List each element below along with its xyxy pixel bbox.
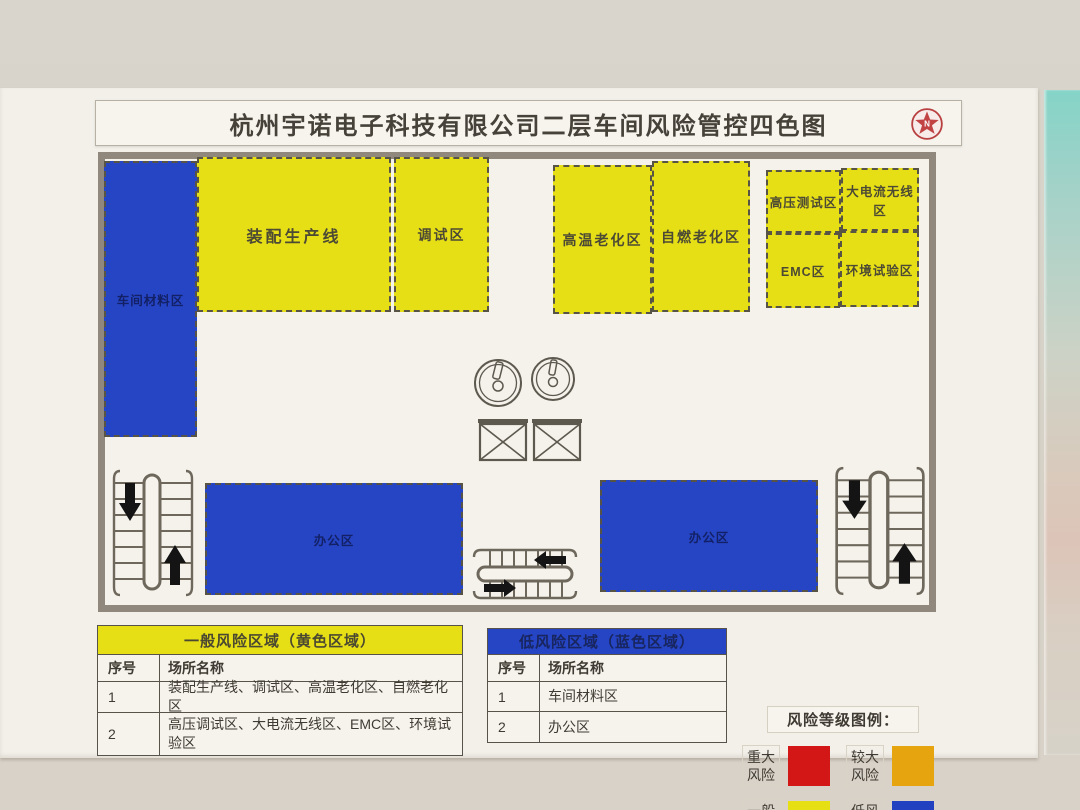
table-row: 2 高压调试区、大电流无线区、EMC区、环境试验区 bbox=[98, 713, 462, 755]
zone-label: 办公区 bbox=[314, 530, 355, 549]
zone-label: 车间材料区 bbox=[117, 290, 185, 309]
row-places: 高压调试区、大电流无线区、EMC区、环境试验区 bbox=[160, 713, 462, 755]
table-row: 1 车间材料区 bbox=[488, 682, 726, 712]
table-row: 2 办公区 bbox=[488, 712, 726, 742]
environment-test-zone: 环境试验区 bbox=[840, 231, 919, 307]
title-bar: 杭州宇诺电子科技有限公司二层车间风险管控四色图 N bbox=[95, 100, 962, 146]
legend-label: 一般风险 bbox=[742, 799, 780, 810]
major-risk-swatch bbox=[788, 746, 830, 786]
legend-item-general-risk: 一般风险 bbox=[742, 799, 840, 810]
washbasin-icon bbox=[472, 355, 584, 411]
emc-zone: EMC区 bbox=[766, 233, 840, 308]
workshop-materials-zone: 车间材料区 bbox=[104, 161, 197, 437]
larger-risk-swatch bbox=[892, 746, 934, 786]
row-places: 装配生产线、调试区、高温老化区、自燃老化区 bbox=[160, 682, 462, 712]
row-places: 车间材料区 bbox=[540, 682, 726, 711]
row-places: 办公区 bbox=[540, 712, 726, 742]
high-temp-aging-zone: 高温老化区 bbox=[553, 165, 652, 314]
risk-legend: 风险等级图例： 重大风险 较大风险 一般风险 低风险 bbox=[742, 706, 944, 810]
table-column-row: 序号 场所名称 bbox=[488, 655, 726, 682]
general-risk-swatch bbox=[788, 801, 830, 810]
zone-label: 大电流无线区 bbox=[843, 181, 917, 219]
legend-label: 低风险 bbox=[846, 799, 884, 810]
assembly-line-zone: 装配生产线 bbox=[197, 157, 391, 312]
column-header-place: 场所名称 bbox=[540, 655, 726, 681]
yellow-table-header: 一般风险区域（黄色区域） bbox=[98, 626, 462, 655]
zone-label: 高压测试区 bbox=[770, 192, 838, 211]
stairs-middle-icon bbox=[470, 545, 580, 603]
debug-zone: 调试区 bbox=[394, 157, 489, 312]
zone-label: 办公区 bbox=[689, 527, 730, 546]
stairs-left-icon bbox=[108, 463, 198, 603]
low-risk-swatch bbox=[892, 801, 934, 810]
legend-item-major-risk: 重大风险 bbox=[742, 745, 840, 787]
row-index: 2 bbox=[488, 712, 540, 742]
high-voltage-test-zone: 高压测试区 bbox=[766, 170, 841, 233]
floor-plan: 车间材料区 装配生产线 调试区 高温老化区 自燃老化区 高压测试区 大电流无线区… bbox=[98, 152, 936, 612]
table-row: 1 装配生产线、调试区、高温老化区、自燃老化区 bbox=[98, 682, 462, 713]
column-header-index: 序号 bbox=[488, 655, 540, 681]
zone-label: 装配生产线 bbox=[246, 223, 341, 247]
legend-item-larger-risk: 较大风险 bbox=[846, 745, 944, 787]
svg-text:N: N bbox=[924, 120, 930, 129]
risk-map-poster: 杭州宇诺电子科技有限公司二层车间风险管控四色图 N 车间材料区 装配生产线 调试… bbox=[0, 88, 1038, 758]
company-logo-icon: N bbox=[909, 106, 945, 142]
row-index: 2 bbox=[98, 713, 160, 755]
row-index: 1 bbox=[98, 682, 160, 712]
yellow-risk-table: 一般风险区域（黄色区域） 序号 场所名称 1 装配生产线、调试区、高温老化区、自… bbox=[97, 625, 463, 756]
zone-label: 环境试验区 bbox=[846, 260, 914, 279]
zone-label: 自燃老化区 bbox=[661, 227, 741, 247]
row-index: 1 bbox=[488, 682, 540, 711]
legend-grid: 重大风险 较大风险 一般风险 低风险 bbox=[742, 745, 944, 810]
legend-label: 较大风险 bbox=[846, 745, 884, 787]
self-ignition-aging-zone: 自燃老化区 bbox=[652, 161, 750, 312]
page-title: 杭州宇诺电子科技有限公司二层车间风险管控四色图 bbox=[230, 106, 828, 141]
office-zone-right: 办公区 bbox=[600, 480, 818, 592]
legend-title: 风险等级图例： bbox=[767, 706, 919, 733]
blue-table-header: 低风险区域（蓝色区域） bbox=[488, 629, 726, 655]
legend-item-low-risk: 低风险 bbox=[846, 799, 944, 810]
side-poster-strip bbox=[1044, 90, 1080, 755]
high-current-wireless-zone: 大电流无线区 bbox=[841, 168, 919, 231]
blue-risk-table: 低风险区域（蓝色区域） 序号 场所名称 1 车间材料区 2 办公区 bbox=[487, 628, 727, 743]
zone-label: EMC区 bbox=[781, 261, 825, 280]
column-header-index: 序号 bbox=[98, 655, 160, 681]
legend-label: 重大风险 bbox=[742, 745, 780, 787]
office-zone-left: 办公区 bbox=[205, 483, 463, 595]
column-header-place: 场所名称 bbox=[160, 655, 462, 681]
elevator-icon bbox=[477, 418, 583, 462]
stairs-right-icon bbox=[830, 460, 930, 602]
zone-label: 调试区 bbox=[418, 225, 466, 245]
zone-label: 高温老化区 bbox=[563, 230, 643, 250]
